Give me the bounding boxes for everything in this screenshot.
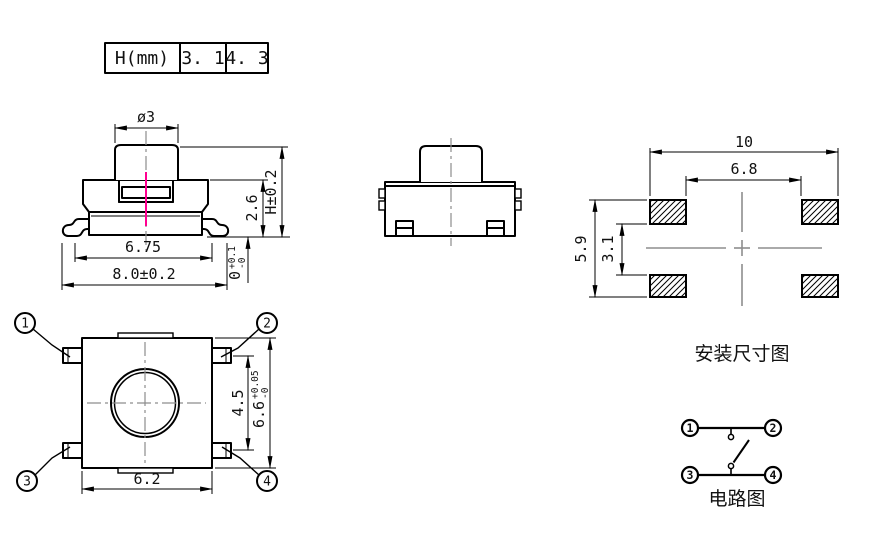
drawing-canvas: H(mm) 3. 1 4. 3 ø3 bbox=[0, 0, 876, 542]
pin-3-label: 3 bbox=[23, 475, 31, 490]
table-header-cell: H(mm) bbox=[115, 48, 169, 69]
dim-pad-outer-width: 10 bbox=[735, 133, 753, 151]
dim-button-diameter: ø3 bbox=[137, 108, 155, 126]
dim-lead-pitch: 4.5 bbox=[229, 389, 247, 416]
mounting-view-caption: 安装尺寸图 bbox=[694, 343, 789, 365]
table-value-cell-1: 3. 1 bbox=[181, 48, 224, 69]
pin-2-label: 2 bbox=[263, 317, 271, 332]
dim-outer-width: 8.0±0.2 bbox=[112, 265, 175, 283]
dim-pad-outer-height: 5.9 bbox=[572, 235, 590, 262]
dim-inner-width: 6.75 bbox=[125, 238, 161, 256]
dim-body-length-minus: -0 bbox=[260, 387, 271, 399]
circuit-pin-3: 3 bbox=[687, 468, 694, 482]
left-lead-foot bbox=[63, 219, 89, 236]
dim-body-length: 6.6 bbox=[250, 401, 268, 428]
pin-4-label: 4 bbox=[263, 475, 271, 490]
top-notch bbox=[118, 333, 173, 338]
pin-1-label: 1 bbox=[21, 317, 29, 332]
circuit-diagram: 1 2 3 4 电路图 bbox=[682, 420, 781, 510]
dim-body-width: 6.2 bbox=[133, 470, 160, 488]
side-view bbox=[379, 138, 521, 246]
circuit-caption: 电路图 bbox=[708, 488, 765, 510]
dim-total-height: H±0.2 bbox=[262, 169, 280, 214]
dim-body-width-group: 6.2 bbox=[82, 470, 212, 494]
dim-pad-inner-width: 6.8 bbox=[730, 160, 757, 178]
dim-pad-inner-height: 3.1 bbox=[599, 235, 617, 262]
circuit-pin-2: 2 bbox=[770, 421, 777, 435]
height-table: H(mm) 3. 1 4. 3 bbox=[105, 43, 269, 73]
dim-pad-inner-width-group: 6.8 bbox=[686, 160, 801, 196]
mounting-view: 10 6.8 5.9 3.1 bbox=[572, 133, 838, 365]
circuit-pin-4: 4 bbox=[770, 468, 777, 482]
dim-step-height-group: 2.6 bbox=[210, 180, 268, 237]
pad-bottom-left bbox=[650, 275, 686, 297]
table-value-cell-2: 4. 3 bbox=[225, 48, 268, 69]
technical-drawing-page: H(mm) 3. 1 4. 3 ø3 bbox=[0, 0, 876, 542]
dim-standoff-minus: -0 bbox=[237, 257, 248, 269]
dim-standoff: 0 bbox=[226, 271, 244, 280]
front-view: ø3 H±0.2 2.6 0 +0.1 -0 bbox=[62, 108, 290, 290]
dim-inner-width-group: 6.75 bbox=[75, 238, 212, 262]
right-lead-foot bbox=[202, 219, 228, 236]
circuit-pin-1: 1 bbox=[687, 421, 694, 435]
pad-top-left bbox=[650, 200, 686, 224]
switch-contact-symbol bbox=[728, 428, 749, 475]
dim-step-height: 2.6 bbox=[243, 194, 261, 221]
dim-standoff-group: 0 +0.1 -0 bbox=[226, 237, 248, 283]
top-view: 1 2 3 4 4.5 6.6 +0.05 -0 bbox=[15, 313, 277, 494]
pad-top-right bbox=[802, 200, 838, 224]
pad-bottom-right bbox=[802, 275, 838, 297]
dim-pad-inner-height-group: 3.1 bbox=[599, 224, 647, 275]
